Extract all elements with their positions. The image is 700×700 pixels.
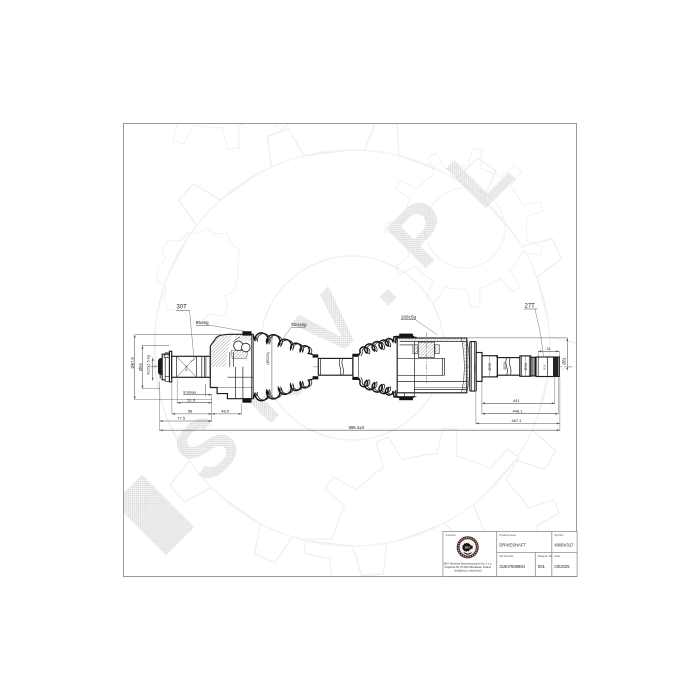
svg-text:467.1: 467.1 bbox=[512, 418, 523, 423]
svg-text:31: 31 bbox=[546, 346, 551, 351]
svg-text:Importer: Importer bbox=[446, 533, 456, 537]
svg-text:03/2025: 03/2025 bbox=[554, 564, 570, 569]
svg-text:504±5g: 504±5g bbox=[291, 322, 307, 327]
svg-text:Ø44: Ø44 bbox=[472, 362, 477, 370]
svg-text:SKV: SKV bbox=[465, 546, 470, 549]
svg-text:51.5: 51.5 bbox=[187, 397, 196, 402]
svg-text:998.4±3: 998.4±3 bbox=[349, 425, 365, 430]
svg-text:SKV Wyrobów Motoryzacyjnych Sp: SKV Wyrobów Motoryzacyjnych Sp. z o.o. bbox=[444, 562, 493, 566]
svg-text:Papieżka 69, 87-800 Włocławek,: Papieżka 69, 87-800 Włocławek, Poland bbox=[445, 565, 492, 569]
svg-text:27T: 27T bbox=[525, 303, 536, 309]
svg-text:31607599884: 31607599884 bbox=[499, 564, 525, 569]
svg-text:160±5g: 160±5g bbox=[401, 314, 417, 319]
svg-text:M27x1.5-6g: M27x1.5-6g bbox=[147, 355, 151, 374]
svg-text:Date: Date bbox=[554, 554, 560, 558]
svg-text:info@skv.pl, www.skv.pl: info@skv.pl, www.skv.pl bbox=[454, 569, 482, 573]
svg-text:Ø81: Ø81 bbox=[562, 356, 567, 364]
svg-text:OE Number: OE Number bbox=[499, 554, 513, 558]
svg-text:DRIVESHAFT: DRIVESHAFT bbox=[499, 542, 526, 547]
svg-text:Ø97.9: Ø97.9 bbox=[130, 357, 135, 369]
svg-text:Y-Y: Y-Y bbox=[543, 364, 547, 370]
svg-text:Diagram No.: Diagram No. bbox=[538, 554, 553, 558]
svg-text:448.1: 448.1 bbox=[513, 408, 524, 413]
svg-text:77.5: 77.5 bbox=[177, 416, 186, 421]
svg-text:58: 58 bbox=[188, 409, 193, 414]
svg-text:Ø65: Ø65 bbox=[138, 363, 143, 371]
svg-text:8.9max: 8.9max bbox=[183, 389, 196, 394]
svg-text:4006V317: 4006V317 bbox=[554, 542, 574, 547]
svg-text:85±5g: 85±5g bbox=[196, 320, 209, 325]
svg-text:Ø35: Ø35 bbox=[487, 362, 492, 370]
svg-text:Ø30: Ø30 bbox=[523, 362, 528, 370]
svg-text:001: 001 bbox=[538, 564, 546, 569]
svg-text:Ø29.: Ø29. bbox=[502, 361, 507, 370]
svg-text:Symbol: Symbol bbox=[554, 533, 563, 537]
svg-text:X-X: X-X bbox=[184, 365, 188, 372]
svg-text:48.5: 48.5 bbox=[221, 409, 230, 414]
svg-text:441: 441 bbox=[513, 398, 520, 403]
svg-text:30T: 30T bbox=[176, 305, 187, 311]
svg-text:Product name: Product name bbox=[499, 533, 516, 537]
svg-text:(Ø103): (Ø103) bbox=[265, 351, 270, 364]
